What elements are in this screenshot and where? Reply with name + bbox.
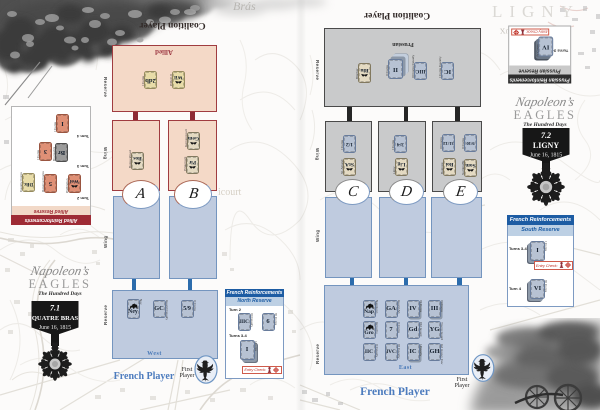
svg-text:LIGNY: LIGNY	[533, 141, 559, 150]
svg-text:June 16, 1815: June 16, 1815	[39, 325, 71, 331]
svg-text:QUATRE BRAS: QUATRE BRAS	[32, 315, 79, 322]
svg-text:7.2: 7.2	[541, 131, 551, 140]
svg-text:LIGNY: LIGNY	[492, 2, 580, 21]
svg-text:icourt: icourt	[218, 187, 242, 198]
svg-text:June 16, 1815: June 16, 1815	[530, 153, 562, 159]
svg-text:7.1: 7.1	[50, 304, 60, 313]
